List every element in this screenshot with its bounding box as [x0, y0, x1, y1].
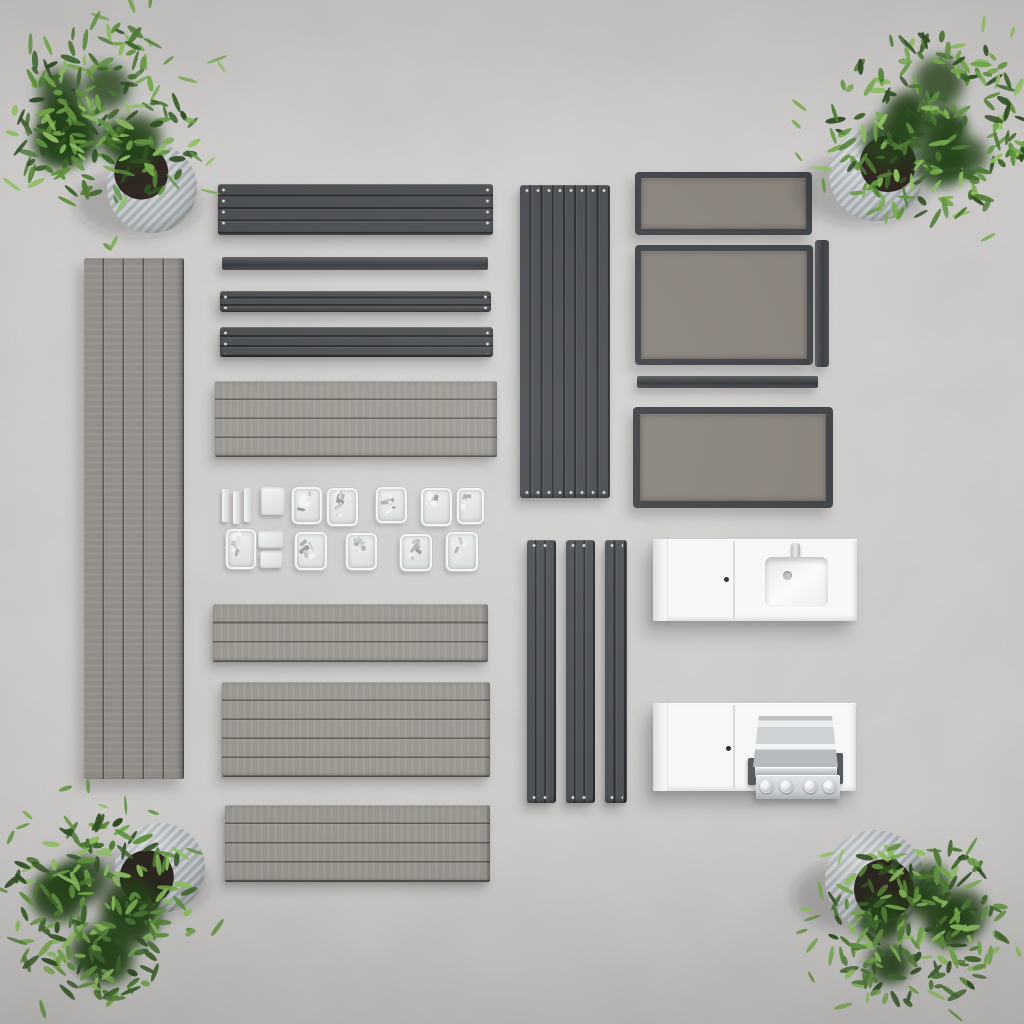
burner-knob: [823, 780, 836, 793]
grill-control-panel: [756, 775, 840, 799]
frame-beam-large: [218, 184, 493, 235]
support-leg: [527, 540, 556, 803]
door-knob: [726, 746, 731, 751]
hardware-tray: [327, 488, 358, 526]
side-rail-horizontal: [637, 376, 818, 388]
framed-side-panel: [633, 407, 833, 508]
hardware-tray: [400, 534, 432, 571]
hardware-tray: [346, 533, 377, 570]
hardware-plate: [260, 551, 283, 568]
sink-module: [653, 539, 857, 621]
deck-board: [215, 381, 497, 457]
burner-knob: [804, 780, 817, 793]
cabinet-side: [653, 539, 668, 621]
deck-board: [225, 805, 490, 882]
hardware-tray: [376, 487, 407, 523]
hardware-tray: [457, 488, 484, 524]
door-divider: [733, 705, 735, 789]
framed-side-panel: [635, 172, 812, 235]
framed-side-panel: [635, 245, 813, 365]
faucet: [791, 543, 800, 557]
frame-beam-wide: [220, 327, 493, 357]
grill-hood: [753, 716, 838, 767]
door-divider: [733, 541, 735, 619]
burner-knob: [780, 780, 793, 793]
side-rail-vertical: [815, 240, 829, 367]
flatlay-photo: [0, 0, 1024, 1024]
deck-panel-tall: [84, 258, 184, 779]
mounting-rail: [222, 257, 488, 270]
hardware-tray: [446, 532, 478, 571]
hardware-plate: [258, 531, 284, 548]
hardware-tray: [421, 488, 452, 526]
hardware-tray: [292, 487, 322, 524]
support-leg: [605, 540, 627, 803]
door-knob: [724, 577, 729, 582]
sink-drain: [783, 571, 792, 580]
slat-back-panel: [520, 185, 610, 498]
hardware-tray: [226, 529, 256, 569]
hardware-tray: [295, 532, 327, 570]
deck-board: [222, 682, 490, 777]
deck-board: [213, 604, 488, 662]
cabinet-side: [653, 703, 668, 791]
sink-basin: [765, 557, 828, 607]
frame-beam-medium: [220, 291, 491, 312]
hardware-plate: [261, 487, 285, 515]
burner-knob: [760, 780, 773, 793]
support-leg: [566, 540, 595, 803]
